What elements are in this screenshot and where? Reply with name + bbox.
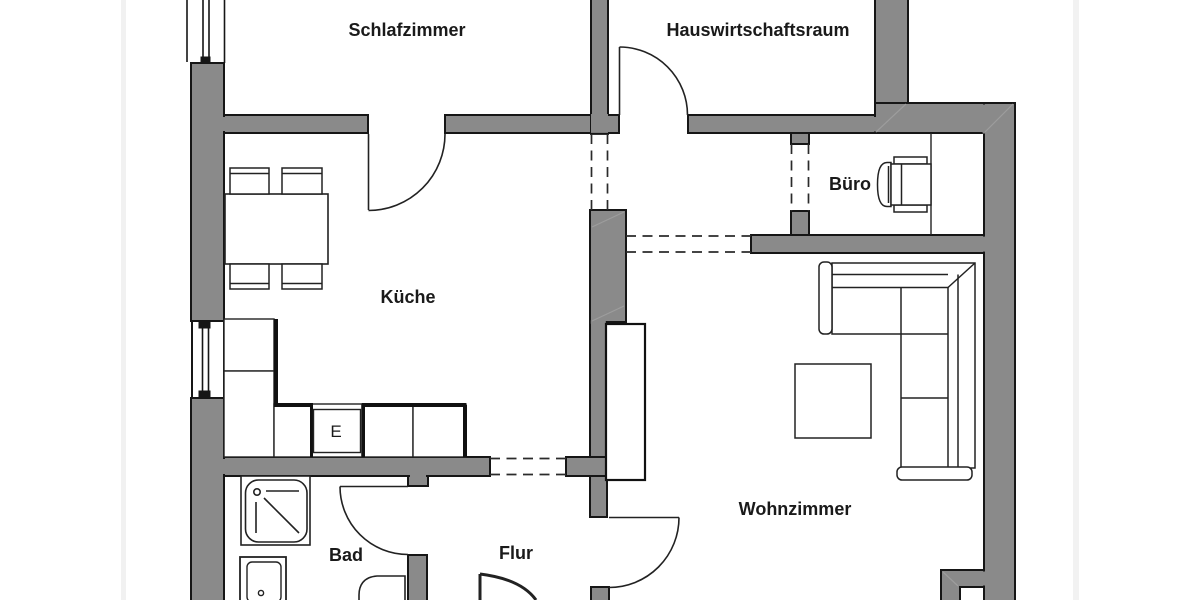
svg-text:Schlafzimmer: Schlafzimmer <box>348 20 465 40</box>
svg-text:Hauswirtschaftsraum: Hauswirtschaftsraum <box>666 20 849 40</box>
svg-text:Bad: Bad <box>329 545 363 565</box>
svg-text:Flur: Flur <box>499 543 533 563</box>
svg-text:E: E <box>330 422 341 441</box>
svg-text:Wohnzimmer: Wohnzimmer <box>739 499 852 519</box>
svg-text:Büro: Büro <box>829 174 871 194</box>
svg-text:Küche: Küche <box>380 287 435 307</box>
